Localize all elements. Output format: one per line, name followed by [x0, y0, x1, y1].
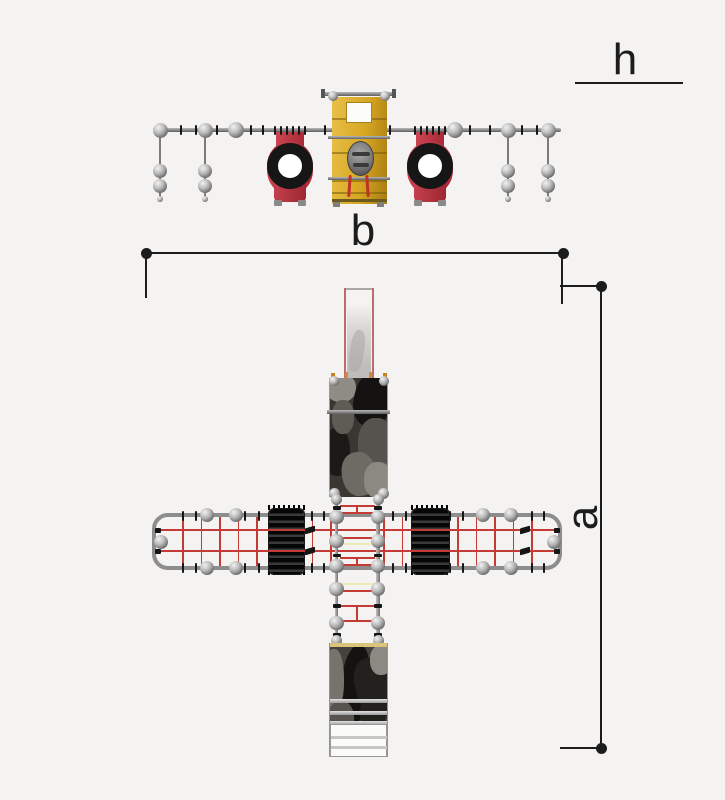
rope-end-cap [157, 196, 163, 202]
dimension-a-bottom-tick [560, 747, 602, 749]
post-ball [371, 559, 386, 574]
post-clamp-tick [374, 506, 382, 510]
ring-foot [298, 200, 306, 206]
tire-ring [407, 143, 453, 189]
rail-clamp-tick [531, 511, 533, 521]
bar-node-ball [228, 122, 244, 138]
dimension-h-line [575, 82, 683, 84]
bar-clamp-tick [262, 125, 264, 135]
porthole-slot [352, 152, 370, 156]
ladder-rung [330, 711, 388, 715]
tower-top-cap [321, 89, 325, 98]
net-line-vertical [494, 517, 496, 566]
bar-clamp-tick [195, 125, 197, 135]
rail-clamp-tick [543, 563, 545, 573]
ladder-white-section [330, 724, 387, 757]
rail-clamp-tick [244, 511, 246, 521]
ladder-rung [330, 699, 388, 703]
post-clamp-tick [374, 554, 382, 558]
ring-attach-tick [298, 126, 300, 135]
ring-attach-tick [292, 126, 294, 135]
net-line-end-tick [554, 549, 560, 554]
dimension-a-label: a [561, 496, 605, 540]
bar-node-ball [501, 123, 516, 138]
dimension-a-line [600, 286, 602, 748]
bar-clamp-tick [180, 125, 182, 135]
ring-foot [438, 200, 446, 206]
rail-clamp-tick [392, 563, 394, 573]
post-cap [331, 494, 342, 505]
dimension-b-right-extension [561, 253, 563, 304]
rope-end-cap [202, 196, 208, 202]
rail-clamp-tick [462, 511, 464, 521]
bar-clamp-tick [521, 125, 523, 135]
bar-node-ball [153, 123, 168, 138]
dimension-a-top-dot [596, 281, 607, 292]
post-ball [329, 534, 344, 549]
dimension-b-left-extension [145, 253, 147, 298]
bar-node-ball [198, 123, 213, 138]
post-ball [329, 510, 344, 525]
ring-foot [274, 200, 282, 206]
net-line-vertical [182, 517, 184, 566]
tire-ring [267, 143, 313, 189]
tower-corner-dome [380, 91, 390, 101]
rung-connector [356, 605, 358, 622]
post-clamp-tick [333, 604, 341, 608]
rail-clamp-tick [531, 563, 533, 573]
dimension-h-label: h [603, 38, 647, 82]
rail-ball [476, 508, 490, 522]
rail-clamp-tick [449, 563, 451, 573]
ring-foot [414, 200, 422, 206]
slide-rail [372, 288, 374, 380]
post-ball [329, 582, 344, 597]
rope-end-cap [545, 196, 551, 202]
rail-ball [476, 561, 490, 575]
net-line-vertical [238, 517, 240, 566]
rail-ball [200, 508, 214, 522]
rope-climbing-ball [153, 164, 167, 178]
rail-clamp-tick [258, 511, 260, 521]
ring-attach-tick [414, 126, 416, 135]
bar-clamp-tick [469, 125, 471, 135]
net-line-horizontal [157, 529, 557, 531]
rail-clamp-tick [182, 511, 184, 521]
rope-end-cap [505, 196, 511, 202]
tower-foot [377, 202, 384, 207]
post-clamp-tick [333, 506, 341, 510]
rail-clamp-tick [543, 511, 545, 521]
rung-connector [356, 557, 358, 566]
ring-attach-tick [444, 126, 446, 135]
rail-clamp-tick [195, 563, 197, 573]
rail-clamp-tick [323, 511, 325, 521]
rope-climbing-ball [541, 164, 555, 178]
lower-platform [329, 643, 388, 757]
post-ball [329, 616, 344, 631]
dimension-b-line [146, 252, 563, 254]
slide-top-bar [344, 288, 374, 291]
column-rung-red [340, 537, 375, 539]
rope-climbing-ball [153, 179, 167, 193]
bar-clamp-tick [216, 125, 218, 135]
tower-top-cap [392, 89, 396, 98]
bar-node-ball [541, 123, 556, 138]
platform-corner-dome [379, 376, 389, 386]
net-line-vertical [531, 517, 533, 566]
tower-corner-dome [328, 91, 338, 101]
net-line-vertical [513, 517, 515, 566]
tower-stripe [332, 192, 387, 194]
rail-ball [504, 561, 518, 575]
ladder-rung [331, 746, 388, 749]
rail-clamp-tick [449, 511, 451, 521]
net-line-vertical [201, 517, 203, 566]
ring-attach-tick [286, 126, 288, 135]
dimension-b-label: b [341, 209, 385, 253]
rail-clamp-tick [311, 511, 313, 521]
tower-foot [333, 202, 340, 207]
rail-ball [229, 508, 243, 522]
arm-end-ball [154, 535, 168, 549]
ring-attach-tick [420, 126, 422, 135]
rung-connector [356, 505, 358, 514]
climbing-tunnel [269, 509, 304, 574]
rope-climbing-ball [541, 179, 555, 193]
net-line-end-tick [155, 549, 161, 554]
tower-window [346, 102, 372, 123]
camo-patch [332, 400, 354, 434]
climbing-tunnel [412, 509, 449, 574]
slide-rail [344, 288, 346, 380]
tunnel-porthole [347, 141, 374, 176]
column-rung-yellow [340, 543, 375, 545]
rail-clamp-tick [311, 563, 313, 573]
arm-end-ball [547, 535, 561, 549]
bar-clamp-tick [389, 125, 391, 135]
platform-top-strip [330, 643, 388, 647]
rail-clamp-tick [405, 563, 407, 573]
bar-clamp-tick [536, 125, 538, 135]
net-line-vertical [312, 517, 314, 566]
bar-node-ball [447, 122, 463, 138]
post-ball [329, 559, 344, 574]
tower-cross-bar [328, 177, 390, 180]
post-clamp-tick [333, 554, 341, 558]
rail-ball [229, 561, 243, 575]
post-clamp-tick [374, 604, 382, 608]
porthole-slot [353, 163, 369, 167]
post-ball [371, 582, 386, 597]
net-line-vertical [457, 517, 459, 566]
post-ball [371, 616, 386, 631]
ring-attach-tick [426, 126, 428, 135]
column-rung-red [340, 590, 375, 592]
ladder-rung [331, 736, 388, 739]
ring-attach-tick [438, 126, 440, 135]
rope-climbing-ball [501, 164, 515, 178]
rail-clamp-tick [258, 563, 260, 573]
rope-climbing-ball [198, 179, 212, 193]
playground-dimension-drawing: h b a [0, 0, 725, 800]
net-line-vertical [476, 517, 478, 566]
bar-clamp-tick [324, 125, 326, 135]
ring-attach-tick [280, 126, 282, 135]
ring-attach-tick [432, 126, 434, 135]
ring-attach-tick [274, 126, 276, 135]
upper-platform [329, 378, 388, 497]
rail-clamp-tick [405, 511, 407, 521]
rail-ball [200, 561, 214, 575]
net-line-vertical [219, 517, 221, 566]
rail-clamp-tick [195, 511, 197, 521]
net-line-end-tick [155, 528, 161, 533]
column-rung-yellow [340, 583, 375, 585]
rail-clamp-tick [462, 563, 464, 573]
bar-clamp-tick [489, 125, 491, 135]
rail-ball [504, 508, 518, 522]
tower-cross-bar [328, 136, 390, 139]
net-line-horizontal [157, 550, 557, 552]
net-line-vertical [402, 517, 404, 566]
rope-climbing-ball [198, 164, 212, 178]
post-cap [373, 494, 384, 505]
tower-stripe [332, 180, 387, 182]
net-line-vertical [256, 517, 258, 566]
camo-patch [370, 645, 388, 675]
bar-clamp-tick [250, 125, 252, 135]
rope-climbing-ball [501, 179, 515, 193]
platform-corner-dome [329, 376, 339, 386]
platform-divider-bar [327, 410, 390, 414]
rail-clamp-tick [323, 563, 325, 573]
rail-clamp-tick [182, 563, 184, 573]
rail-clamp-tick [392, 511, 394, 521]
rail-clamp-tick [244, 563, 246, 573]
ring-attach-tick [304, 126, 306, 135]
